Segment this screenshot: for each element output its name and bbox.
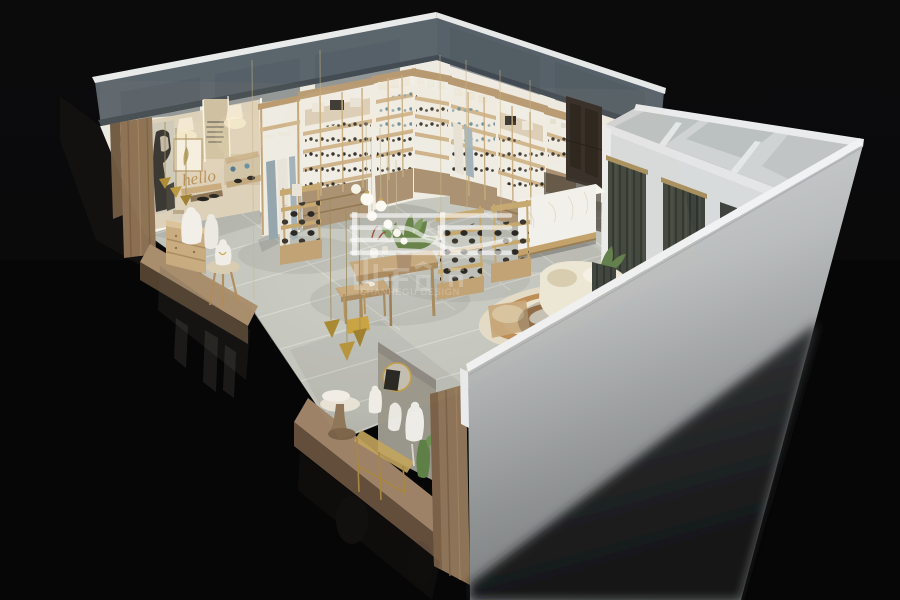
svg-text:SHANHEGU DESIGN: SHANHEGU DESIGN	[360, 287, 460, 297]
